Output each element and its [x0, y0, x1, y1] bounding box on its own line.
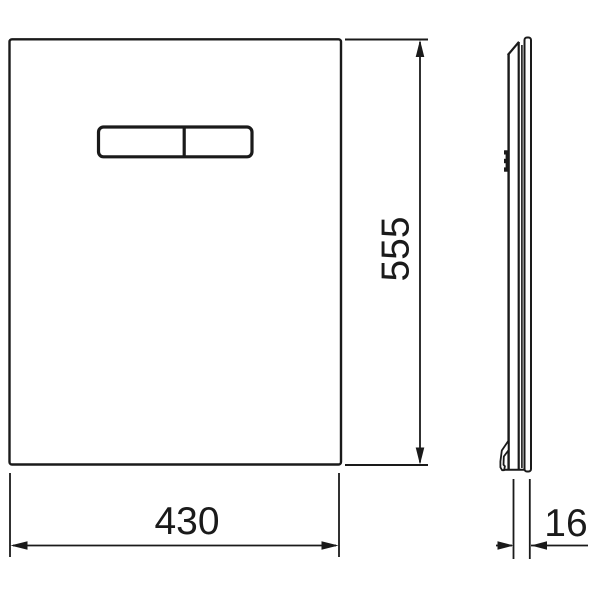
- flush-buttons: [99, 127, 253, 157]
- clip-tooth-top: [504, 150, 506, 154]
- arrowhead-inward-right-icon: [498, 541, 514, 550]
- dimension-height-label: 555: [375, 216, 418, 281]
- dimension-depth-label: 16: [544, 502, 587, 545]
- side-view: [500, 38, 531, 472]
- arrowhead-right-icon: [322, 541, 339, 550]
- arrowhead-left-icon: [11, 541, 28, 550]
- clip-tooth-middle: [504, 159, 506, 163]
- dimension-drawing: 555 430: [0, 0, 600, 600]
- front-view: [10, 39, 342, 464]
- back-plate-profile: [525, 38, 532, 472]
- panel-outline: [10, 39, 342, 464]
- dimension-drawing-canvas: 555 430: [0, 0, 600, 600]
- bottom-hook: [500, 441, 508, 471]
- mounting-clip: [504, 150, 509, 171]
- dimension-height: 555: [345, 40, 428, 466]
- dimension-width-label: 430: [154, 500, 219, 543]
- clip-tooth-bottom: [504, 167, 506, 171]
- arrowhead-down-icon: [416, 448, 425, 465]
- glass-top-bevel-edge: [508, 42, 519, 55]
- dimension-depth: 16: [496, 479, 588, 559]
- dimension-width: 430: [10, 473, 339, 557]
- arrowhead-up-icon: [416, 40, 425, 57]
- button-frame: [99, 127, 253, 157]
